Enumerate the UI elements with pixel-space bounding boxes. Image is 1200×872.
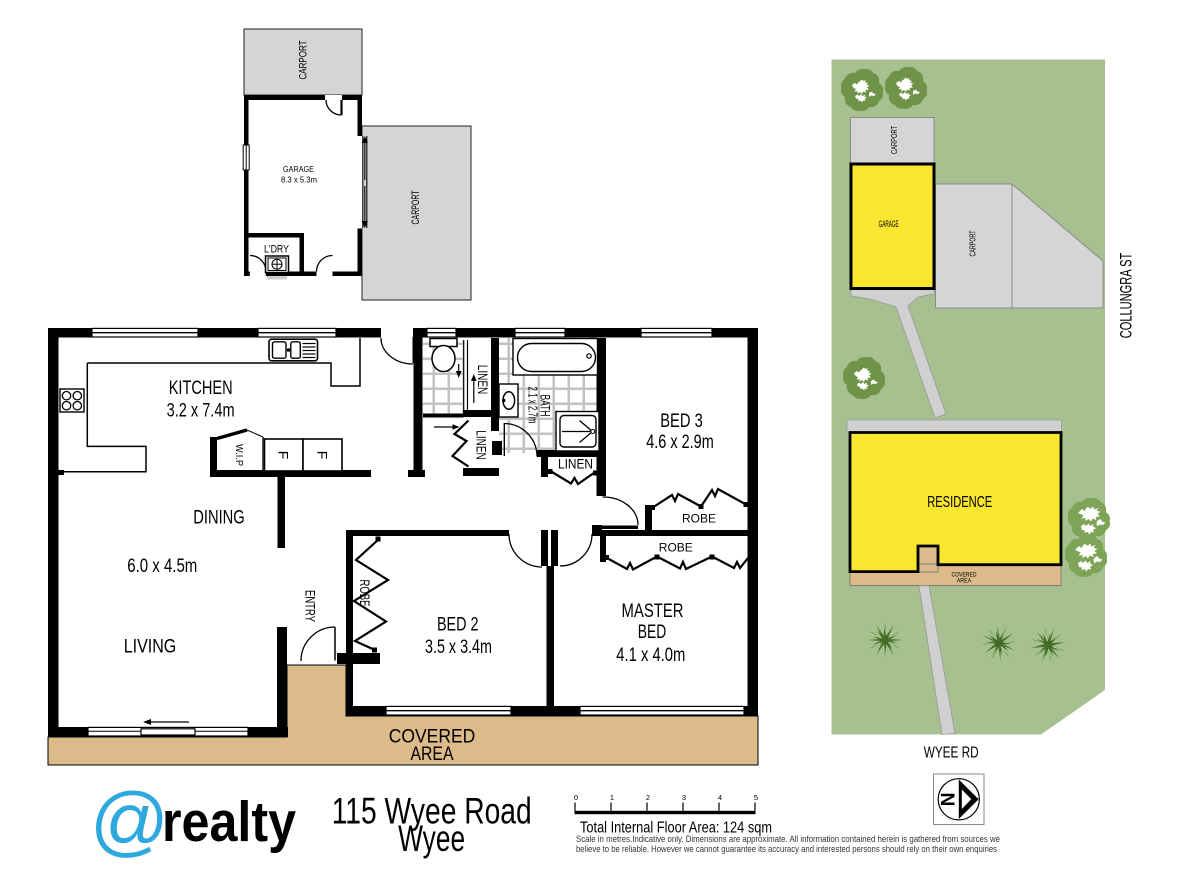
svg-text:F: F xyxy=(276,451,292,460)
svg-text:CARPORT: CARPORT xyxy=(298,40,310,79)
svg-text:4.1 x 4.0m: 4.1 x 4.0m xyxy=(616,645,685,666)
svg-text:2.1 x 2.7m: 2.1 x 2.7m xyxy=(526,387,540,424)
svg-text:N: N xyxy=(936,792,957,806)
svg-text:W.I.P: W.I.P xyxy=(233,444,245,466)
svg-text:WYEE RD: WYEE RD xyxy=(924,745,979,762)
svg-text:BED: BED xyxy=(638,622,667,643)
svg-text:Scale in metres.Indicative onl: Scale in metres.Indicative only. Dimensi… xyxy=(576,834,1000,844)
svg-text:AREA: AREA xyxy=(411,744,454,765)
svg-text:CARPORT: CARPORT xyxy=(968,231,978,257)
svg-text:5: 5 xyxy=(754,793,758,802)
svg-text:1: 1 xyxy=(610,793,614,802)
svg-text:@: @ xyxy=(90,776,169,864)
svg-text:RESIDENCE: RESIDENCE xyxy=(927,494,992,511)
svg-text:GARAGE: GARAGE xyxy=(283,164,314,174)
svg-text:LINEN: LINEN xyxy=(474,430,489,460)
svg-text:F: F xyxy=(315,451,331,460)
svg-text:KITCHEN: KITCHEN xyxy=(169,378,233,399)
svg-text:4.6 x 2.9m: 4.6 x 2.9m xyxy=(646,432,714,453)
svg-text:0: 0 xyxy=(574,793,578,802)
svg-text:8.3 x 5.3m: 8.3 x 5.3m xyxy=(281,176,317,185)
svg-text:LINEN: LINEN xyxy=(475,365,490,395)
svg-text:2: 2 xyxy=(646,793,650,802)
svg-text:believe to be reliable. Howeve: believe to be reliable. However we canno… xyxy=(576,844,998,854)
svg-text:ROBE: ROBE xyxy=(357,580,372,607)
svg-text:ROBE: ROBE xyxy=(659,541,693,555)
svg-text:BED 2: BED 2 xyxy=(437,615,479,636)
svg-text:COLLUNGRA ST: COLLUNGRA ST xyxy=(1118,253,1136,339)
svg-text:3: 3 xyxy=(682,793,686,802)
svg-text:6.0 x 4.5m: 6.0 x 4.5m xyxy=(127,556,197,577)
svg-text:4: 4 xyxy=(718,793,722,802)
svg-text:CARPORT: CARPORT xyxy=(889,126,899,154)
svg-text:Wyee: Wyee xyxy=(398,818,465,859)
svg-text:GARAGE: GARAGE xyxy=(879,219,899,229)
svg-text:AREA: AREA xyxy=(957,578,972,585)
svg-text:3.5 x 3.4m: 3.5 x 3.4m xyxy=(425,637,492,658)
svg-text:DINING: DINING xyxy=(193,508,245,529)
svg-text:MASTER: MASTER xyxy=(622,601,684,622)
svg-text:CARPORT: CARPORT xyxy=(410,190,422,224)
svg-text:LINEN: LINEN xyxy=(558,457,593,472)
svg-text:realty: realty xyxy=(162,790,296,854)
svg-text:ENTRY: ENTRY xyxy=(303,590,319,622)
svg-text:L'DRY: L'DRY xyxy=(264,244,290,256)
svg-text:3.2 x 7.4m: 3.2 x 7.4m xyxy=(167,401,235,422)
svg-text:ROBE: ROBE xyxy=(682,512,716,526)
svg-text:LIVING: LIVING xyxy=(124,637,177,658)
svg-text:BED 3: BED 3 xyxy=(660,411,703,432)
